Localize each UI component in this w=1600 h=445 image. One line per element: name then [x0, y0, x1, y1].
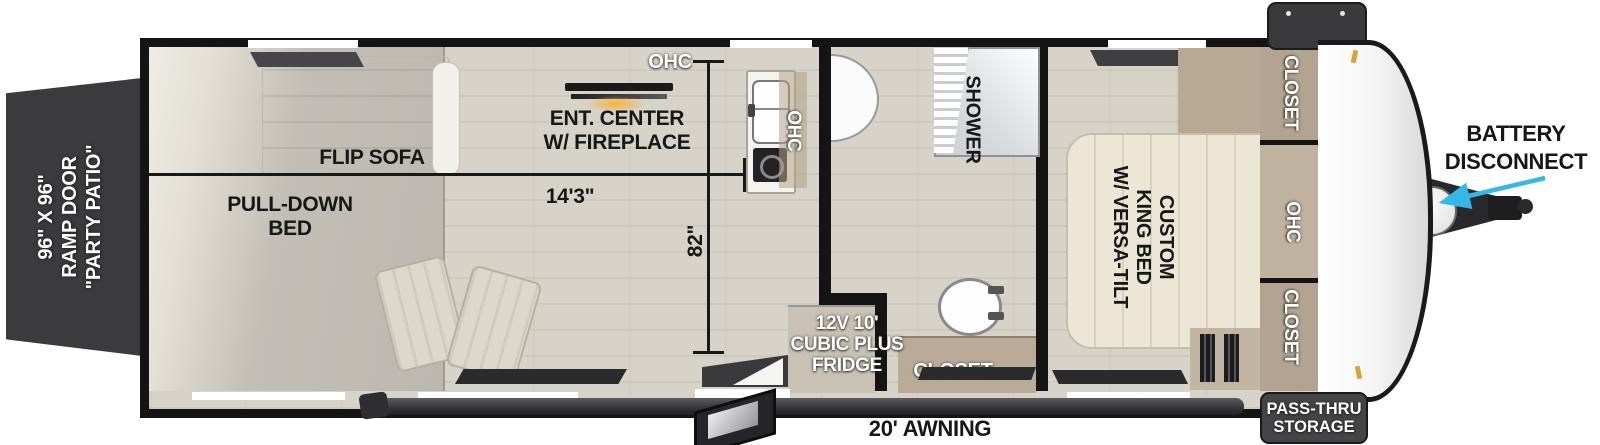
- window-marker: [730, 40, 812, 48]
- rivet-icon: [1340, 11, 1345, 16]
- toilet-hinge: [988, 286, 1004, 294]
- bathroom-wall: [819, 47, 831, 299]
- ent-center-label: ENT. CENTER W/ FIREPLACE: [517, 107, 717, 155]
- closet-top-label: CLOSET: [1279, 47, 1301, 139]
- awning-bar: [366, 398, 1244, 415]
- ramp-door-label-line2: RAMP DOOR: [58, 97, 82, 337]
- ramp-door-label-line3: "PARTY PATIO": [82, 97, 106, 337]
- awning-bar-end: [358, 391, 389, 420]
- awning-roll-icon: [918, 367, 1036, 380]
- ramp-door-label: 96" X 96" RAMP DOOR "PARTY PATIO": [34, 97, 114, 337]
- ohc-kitchen-label: OHC: [782, 102, 804, 160]
- awning-roll-icon: [455, 369, 627, 384]
- awning-roll-icon: [1052, 370, 1188, 384]
- awning-label: 20' AWNING: [840, 416, 1020, 441]
- ramp-door-label-line1: 96" X 96": [34, 97, 58, 337]
- step-bars-icon: [1224, 334, 1239, 382]
- floorplan-diagram: 96" X 96" RAMP DOOR "PARTY PATIO" FLIP S…: [0, 0, 1600, 445]
- front-cap: [1318, 40, 1433, 402]
- battery-arrow-icon: [1425, 170, 1560, 212]
- bed-cabinet: [1178, 47, 1272, 137]
- window-marker: [1108, 40, 1206, 48]
- king-bed-label: CUSTOM KING BED W/ VERSA-TILT: [1103, 142, 1177, 332]
- band-separator: [1260, 140, 1322, 145]
- faucet-icon: [748, 104, 755, 117]
- dimension-cap-bottom: [693, 351, 724, 354]
- toilet-hinge: [988, 312, 1004, 320]
- window-marker: [248, 40, 358, 48]
- ohc-bedroom-label: OHC: [1281, 192, 1303, 252]
- fridge-label: 12V 10' CUBIC PLUS FRIDGE: [767, 314, 927, 377]
- flip-sofa-label: FLIP SOFA: [292, 146, 452, 170]
- dim-82-label: 82": [684, 211, 708, 271]
- window-marker: [192, 392, 345, 400]
- step-bars-icon: [1200, 334, 1215, 382]
- dimension-line-width: [707, 60, 710, 354]
- battery-disconnect-label: BATTERY DISCONNECT: [1432, 120, 1600, 175]
- pull-down-bed-label: PULL-DOWN BED: [200, 193, 380, 241]
- closet-bottom-label: CLOSET: [1279, 281, 1301, 373]
- fireplace-icon: [565, 83, 673, 91]
- skylight-vent-icon: [250, 52, 364, 67]
- rivet-icon: [1286, 11, 1291, 16]
- dimension-line-length: [149, 173, 745, 176]
- pass-thru-storage-badge: PASS-THRU STORAGE: [1260, 392, 1368, 444]
- ohc-top-label: OHC: [638, 51, 702, 74]
- shower-label: SHOWER: [961, 74, 984, 166]
- dim-14-3-label: 14'3": [500, 185, 640, 209]
